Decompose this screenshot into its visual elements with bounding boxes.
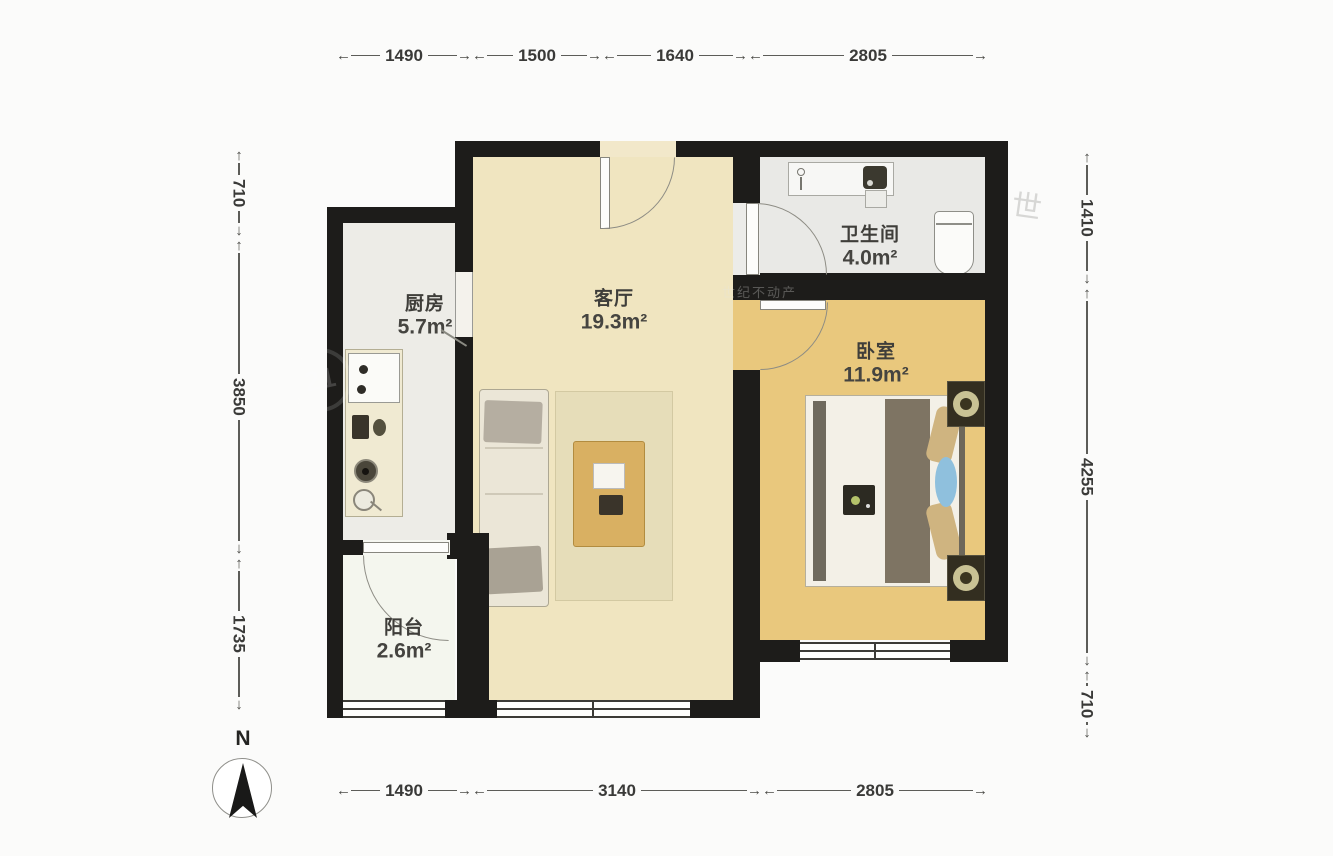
- sofa-seam: [485, 493, 543, 495]
- cutting-board: [352, 415, 369, 439]
- bedroom-label: 卧室 11.9m²: [843, 337, 908, 388]
- dim-value: 2805: [851, 782, 899, 799]
- window-mullion: [874, 642, 876, 660]
- dim-value: 1640: [651, 47, 699, 64]
- room-name: 卫生间: [840, 220, 900, 247]
- dim-value: 1500: [513, 47, 561, 64]
- balcony-window: [343, 700, 445, 718]
- dim-value: 1490: [380, 782, 428, 799]
- room-name: 厨房: [398, 289, 453, 316]
- dim-value: 1490: [380, 47, 428, 64]
- bedroom-doorway: [733, 300, 760, 370]
- floorplan: 厨房 5.7m² 客厅 19.3m² 卫生间 4.0m² 卧室 11.9m² 阳…: [327, 141, 1008, 721]
- dim-value: 710: [231, 175, 248, 211]
- arrow-up-icon: ↑: [1083, 150, 1091, 165]
- wall: [455, 337, 473, 555]
- room-area: 5.7m²: [398, 316, 453, 340]
- sink-drain: [362, 468, 369, 475]
- watermark-char: 世: [1009, 180, 1045, 228]
- wall: [733, 370, 760, 718]
- dim-value: 3140: [593, 782, 641, 799]
- wall: [457, 555, 489, 718]
- bathroom-label: 卫生间 4.0m²: [840, 220, 900, 271]
- toilet-tank-line: [936, 223, 972, 225]
- arrow-left-icon: ←: [336, 48, 351, 63]
- pan: [353, 489, 375, 511]
- wall: [447, 533, 489, 559]
- lamp-center: [960, 398, 972, 410]
- arrow-right-icon: →: [747, 783, 762, 798]
- arrow-right-icon: →: [587, 48, 602, 63]
- room-area: 2.6m²: [377, 640, 432, 664]
- arrow-down-icon: ↓: [1083, 725, 1091, 740]
- dim-bottom-3: ← 2805 →: [762, 782, 988, 799]
- arrow-up-icon: ↑: [235, 148, 243, 163]
- bath-cabinet: [865, 190, 887, 208]
- bed-tray-cup: [851, 496, 860, 505]
- toilet: [934, 211, 974, 275]
- arrow-down-icon: ↓: [235, 541, 243, 556]
- dim-right-3: ↑ 710 ↓: [1074, 668, 1100, 740]
- dim-value: 3850: [231, 374, 248, 420]
- kitchen-doorway: [455, 272, 473, 337]
- floorplan-page: 厨房 5.7m² 客厅 19.3m² 卫生间 4.0m² 卧室 11.9m² 阳…: [0, 0, 1333, 856]
- dim-right-2: ↑ 4255 ↓: [1074, 286, 1100, 668]
- arrow-left-icon: ←: [748, 48, 763, 63]
- room-name: 卧室: [843, 337, 908, 364]
- blue-cushion: [935, 457, 957, 507]
- bed-foot-bench: [813, 401, 826, 581]
- dim-top-3: ← 1640 →: [602, 47, 748, 64]
- room-area: 19.3m²: [581, 311, 648, 335]
- arrow-left-icon: ←: [762, 783, 777, 798]
- room-area: 11.9m²: [843, 364, 908, 388]
- dim-top-4: ← 2805 →: [748, 47, 988, 64]
- room-name: 阳台: [377, 613, 432, 640]
- wall: [676, 141, 1008, 157]
- arrow-right-icon: →: [457, 783, 472, 798]
- north-label: N: [203, 727, 283, 751]
- dim-value: 4255: [1079, 454, 1096, 500]
- wall: [455, 141, 473, 272]
- lamp-center: [960, 572, 972, 584]
- arrow-right-icon: →: [733, 48, 748, 63]
- stove-burner: [359, 365, 368, 374]
- wall: [327, 207, 343, 718]
- sofa-seam: [485, 447, 543, 449]
- arrow-up-icon: ↑: [235, 556, 243, 571]
- wall: [690, 700, 760, 718]
- dim-right-1: ↑ 1410 ↓: [1074, 150, 1100, 286]
- bathroom-sink: [863, 166, 887, 189]
- shower-figure: [797, 168, 805, 176]
- dim-left-2: ↑ 3850 ↓: [226, 238, 252, 556]
- room-area: 4.0m²: [840, 247, 900, 271]
- wall: [445, 700, 497, 718]
- dim-top-2: ← 1500 →: [472, 47, 602, 64]
- dim-value: 2805: [844, 47, 892, 64]
- arrow-left-icon: ←: [602, 48, 617, 63]
- arrow-up-icon: ↑: [1083, 286, 1091, 301]
- arrow-right-icon: →: [973, 48, 988, 63]
- shower-figure-line: [800, 177, 802, 190]
- wall: [760, 273, 985, 300]
- wall: [327, 207, 471, 223]
- bed-blanket: [885, 399, 930, 583]
- wall: [733, 275, 760, 300]
- stove: [348, 353, 400, 403]
- arrow-down-icon: ↓: [1083, 271, 1091, 286]
- balcony-label: 阳台 2.6m²: [377, 613, 432, 664]
- arrow-right-icon: →: [973, 783, 988, 798]
- table-tray: [599, 495, 623, 515]
- bed-tray-dot: [866, 504, 870, 508]
- wall: [760, 640, 800, 662]
- sofa-throw: [485, 546, 543, 595]
- dim-bottom-1: ← 1490 →: [336, 782, 472, 799]
- entry-threshold-floor: [600, 141, 676, 157]
- wall: [985, 141, 1008, 662]
- table-paper: [593, 463, 625, 489]
- kitchen-item: [373, 419, 386, 436]
- north-compass: N: [203, 727, 283, 827]
- living-room-label: 客厅 19.3m²: [581, 284, 648, 335]
- dim-value: 1735: [231, 611, 248, 657]
- wall: [455, 141, 600, 157]
- dim-top-1: ← 1490 →: [336, 47, 472, 64]
- sofa-throw: [483, 400, 542, 444]
- wall: [733, 157, 760, 203]
- room-name: 客厅: [581, 284, 648, 311]
- arrow-left-icon: ←: [472, 783, 487, 798]
- dim-left-1: ↑ 710 ↓: [226, 148, 252, 238]
- arrow-up-icon: ↑: [235, 238, 243, 253]
- arrow-down-icon: ↓: [1083, 653, 1091, 668]
- wall: [327, 540, 363, 555]
- arrow-right-icon: →: [457, 48, 472, 63]
- arrow-up-icon: ↑: [1083, 668, 1091, 683]
- dim-value: 1410: [1079, 195, 1096, 241]
- arrow-down-icon: ↓: [235, 697, 243, 712]
- sink-faucet: [867, 180, 873, 186]
- arrow-left-icon: ←: [472, 48, 487, 63]
- arrow-left-icon: ←: [336, 783, 351, 798]
- dim-bottom-2: ← 3140 →: [472, 782, 762, 799]
- window-mullion: [592, 700, 594, 718]
- dim-value: 710: [1079, 686, 1096, 722]
- coffee-table: [573, 441, 645, 547]
- dim-left-3: ↑ 1735 ↓: [226, 556, 252, 712]
- stove-burner: [357, 385, 366, 394]
- arrow-down-icon: ↓: [235, 223, 243, 238]
- balcony-door-leaf: [363, 542, 449, 553]
